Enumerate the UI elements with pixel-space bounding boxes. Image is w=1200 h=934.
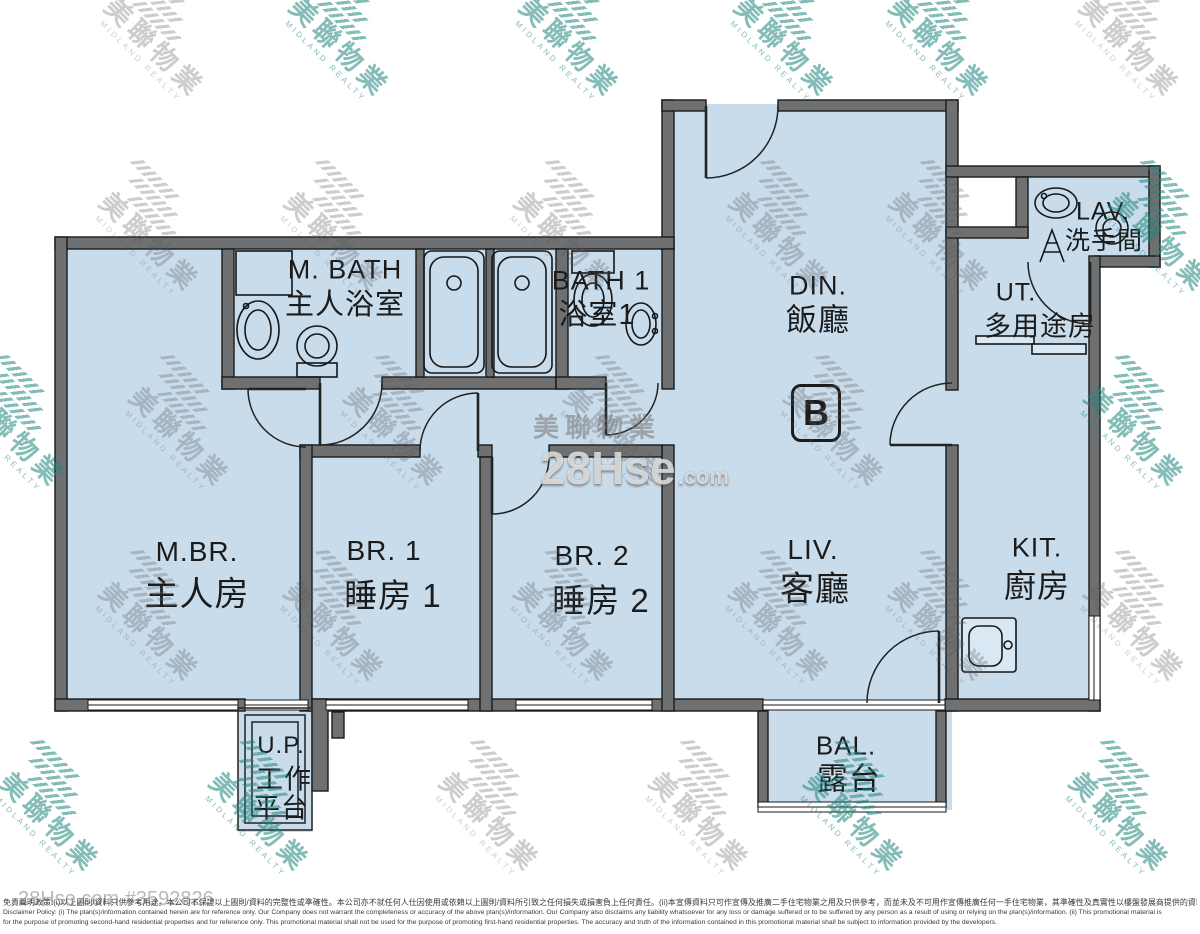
room-label-mbr-zh: 主人房 bbox=[145, 567, 250, 616]
room-label-ut-zh: 多用途房 bbox=[984, 305, 1096, 344]
room-label-kit-en: KIT. bbox=[1012, 533, 1063, 564]
room-label-lav-zh: 洗手間 bbox=[1065, 221, 1143, 257]
room-label-din-zh: 飯廳 bbox=[786, 295, 850, 340]
disclaimer-line-en1: Disclaimer Policy: (i) The plan(s)/infor… bbox=[3, 908, 1197, 918]
floor-plan-drawing bbox=[0, 0, 1200, 934]
room-label-mbr-en: M.BR. bbox=[156, 536, 239, 568]
room-label-mbath-zh: 主人浴室 bbox=[285, 281, 405, 323]
room-label-bath1-zh: 浴室1 bbox=[558, 291, 635, 333]
room-label-br2-en: BR. 2 bbox=[554, 540, 629, 572]
room-label-liv-zh: 客廳 bbox=[780, 562, 850, 611]
room-label-bal-zh: 露台 bbox=[817, 754, 881, 799]
disclaimer-footer: 免責聲明政策:(i)以上圖則/資料只供參考用途。本公司不保證以上圖則/資料的完整… bbox=[3, 897, 1197, 928]
room-label-br1-en: BR. 1 bbox=[346, 535, 421, 567]
room-label-kit-zh: 廚房 bbox=[1004, 561, 1070, 607]
room-label-up-zh2: 平台 bbox=[253, 787, 309, 826]
room-label-ut-en: UT. bbox=[996, 279, 1037, 308]
room-fills bbox=[60, 104, 1154, 832]
unit-b-badge: B bbox=[791, 384, 841, 442]
room-label-up-en: U.P. bbox=[257, 732, 305, 760]
ut-counter bbox=[1032, 344, 1086, 354]
disclaimer-line-zh: 免責聲明政策:(i)以上圖則/資料只供參考用途。本公司不保證以上圖則/資料的完整… bbox=[3, 897, 1197, 908]
disclaimer-line-en2: for the purpose of promoting second-hand… bbox=[3, 918, 1197, 928]
floorplan-page: M. BATH 主人浴室 BATH 1 浴室1 DIN. 飯廳 LAV. 洗手間… bbox=[0, 0, 1200, 934]
room-label-br1-zh: 睡房 1 bbox=[344, 569, 442, 617]
room-label-br2-zh: 睡房 2 bbox=[552, 574, 650, 622]
